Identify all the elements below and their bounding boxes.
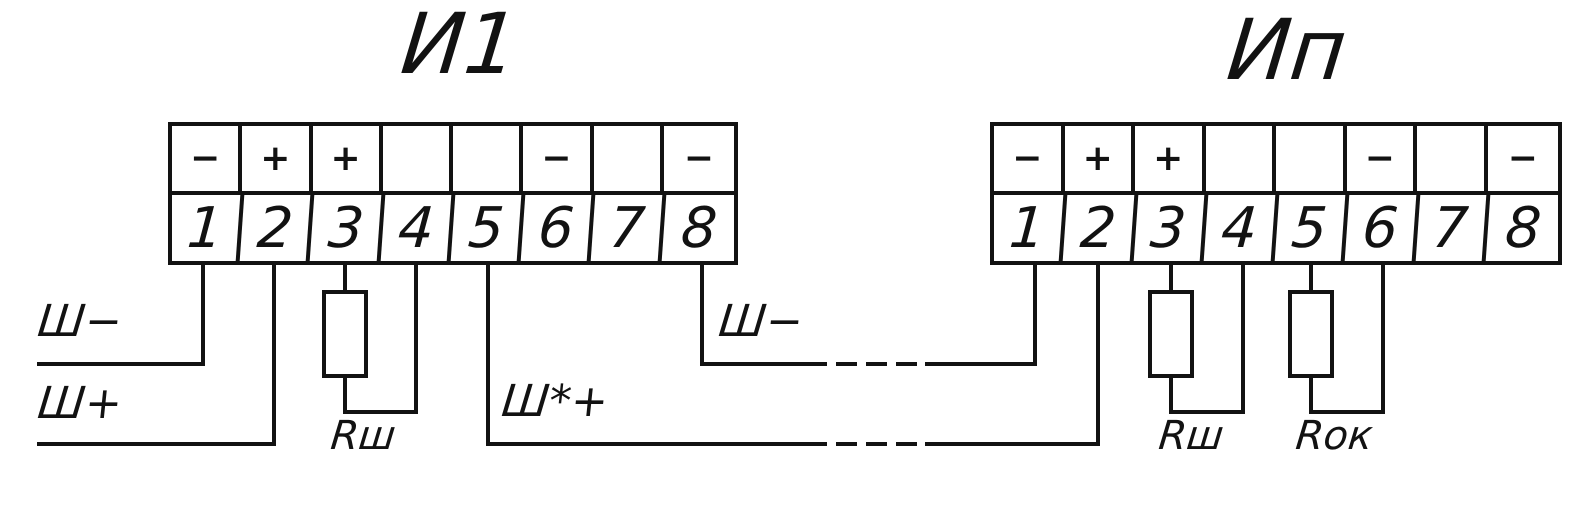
right-terminal-6-sign: − [1347,126,1418,195]
left-terminal-3-number: 3 [310,195,385,261]
left-terminal-4-sign [383,126,453,195]
left-terminal-7-number: 7 [591,195,666,261]
right-terminal-4-number: 4 [1203,195,1278,261]
wire-left-resistor-bottom [343,374,347,414]
wire-right-rok-bottom [1309,374,1313,414]
label-rok: Rок [1294,416,1375,456]
right-terminal-4-sign [1206,126,1277,195]
right-terminal-2-number: 2 [1062,195,1137,261]
label-rsh-left: Rш [329,416,398,456]
right-terminal-1-number: 1 [992,195,1067,261]
left-terminal-6-number: 6 [521,195,596,261]
wire-right-terminal1-drop [1033,265,1037,366]
left-terminal-block: − + + − − 1 2 3 4 5 6 7 8 [168,122,738,265]
right-terminal-5-sign [1276,126,1347,195]
wire-left-terminal8-drop [700,265,704,366]
wire-shunt-star-plus-solid-left [486,442,827,446]
left-terminal-5-number: 5 [451,195,526,261]
wire-left-terminal1-drop [201,265,205,366]
left-terminal-5-sign [453,126,523,195]
wiring-diagram: И1 Ип − + + − − 1 2 3 4 5 6 7 8 − + + − … [0,0,1570,509]
left-block-title: И1 [398,2,523,86]
label-rsh-right: Rш [1157,416,1226,456]
left-terminal-1-sign: − [172,126,242,195]
right-terminal-8-number: 8 [1485,195,1560,261]
left-terminal-7-sign [594,126,664,195]
wire-right-rsh-bottom [1169,374,1173,414]
right-terminal-6-number: 6 [1344,195,1419,261]
label-shunt-star-plus: Ш*+ [500,380,611,424]
right-terminal-3-number: 3 [1133,195,1208,261]
right-terminal-3-sign: + [1135,126,1206,195]
wire-left-terminal4-drop [414,265,418,414]
wire-shunt-minus-solid-right [925,362,1037,366]
wire-shunt-star-plus-dashed [827,442,925,446]
left-terminal-8-sign: − [664,126,734,195]
wire-right-terminal6-drop [1381,265,1385,414]
wire-shunt-minus-dashed [827,362,925,366]
label-shunt-plus-left: Ш+ [36,382,125,426]
right-terminal-8-sign: − [1488,126,1559,195]
right-terminal-block: − + + − − 1 2 3 4 5 6 7 8 [990,122,1562,265]
wire-left-terminal2-drop [272,265,276,446]
left-terminal-8-number: 8 [661,195,736,261]
right-terminal-5-number: 5 [1274,195,1349,261]
right-terminal-2-sign: + [1065,126,1136,195]
left-terminal-1-number: 1 [170,195,245,261]
resistor-rok [1288,290,1334,378]
wire-shunt-star-plus-solid-right [925,442,1100,446]
wire-left-terminal5-drop [486,265,490,446]
right-block-title: Ип [1224,8,1351,92]
wire-shunt-minus-solid-left [700,362,827,366]
wire-shunt-plus-left [37,442,276,446]
resistor-rsh-right [1148,290,1194,378]
wire-right-terminal2-drop [1096,265,1100,446]
right-terminal-7-sign [1417,126,1488,195]
label-shunt-minus-mid: Ш− [717,300,806,344]
left-terminal-4-number: 4 [380,195,455,261]
left-terminal-6-sign: − [523,126,593,195]
resistor-rsh-left [322,290,368,378]
wire-right-terminal4-drop [1241,265,1245,414]
label-shunt-minus-left: Ш− [36,300,125,344]
right-terminal-7-number: 7 [1415,195,1490,261]
wire-shunt-minus-left [37,362,205,366]
left-terminal-2-sign: + [242,126,312,195]
right-terminal-1-sign: − [994,126,1065,195]
left-terminal-3-sign: + [313,126,383,195]
left-terminal-2-number: 2 [240,195,315,261]
